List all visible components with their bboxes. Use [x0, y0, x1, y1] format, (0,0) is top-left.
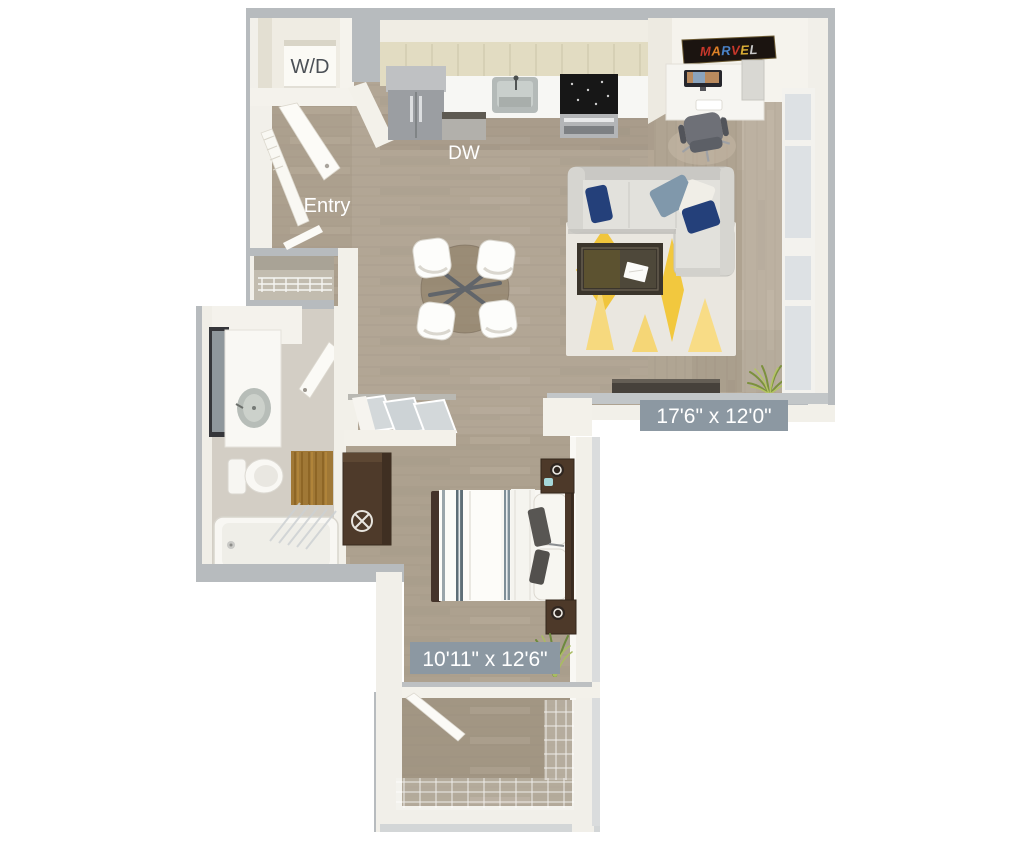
svg-text:Entry: Entry	[304, 195, 351, 217]
svg-text:W/D: W/D	[291, 56, 330, 78]
svg-text:17'6" x 12'0": 17'6" x 12'0"	[656, 405, 771, 428]
svg-text:DW: DW	[448, 143, 480, 164]
svg-text:10'11" x 12'6": 10'11" x 12'6"	[422, 648, 547, 671]
svg-text:MARVEL: MARVEL	[700, 42, 758, 59]
